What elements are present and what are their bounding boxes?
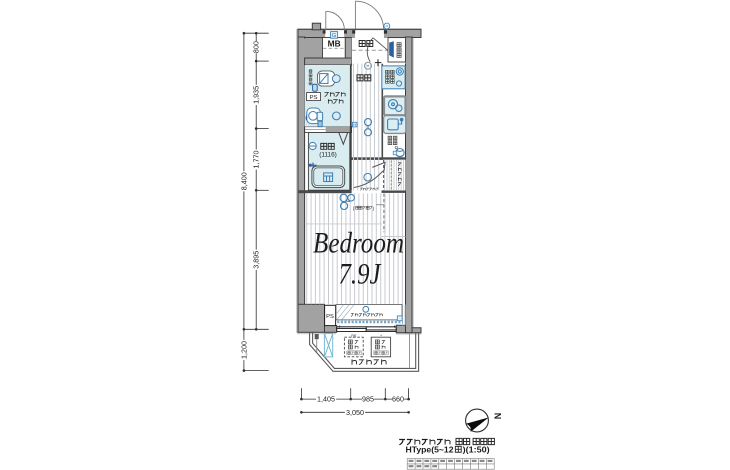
svg-text:G: G: [332, 33, 336, 39]
svg-text:(1116): (1116): [319, 151, 337, 158]
svg-text:Bedroom: Bedroom: [313, 228, 404, 260]
svg-text:3,895: 3,895: [252, 251, 261, 269]
svg-text:3,050: 3,050: [346, 408, 364, 417]
svg-text:HType(5~12: HType(5~12: [406, 445, 454, 455]
svg-text:)(1:50): )(1:50): [463, 445, 490, 455]
svg-text:^: ^: [380, 333, 382, 338]
svg-text:H: H: [353, 123, 356, 127]
svg-text:PS: PS: [310, 95, 318, 101]
svg-text:N: N: [493, 413, 503, 420]
svg-text:660: 660: [392, 395, 404, 404]
svg-text:985: 985: [362, 395, 374, 404]
svg-text:1,770: 1,770: [252, 150, 261, 168]
svg-text:800: 800: [252, 41, 261, 53]
svg-text:1,935: 1,935: [252, 86, 261, 104]
svg-text:7.9J: 7.9J: [339, 259, 383, 291]
svg-text:MB: MB: [328, 39, 341, 49]
svg-text:(w): (w): [351, 334, 356, 338]
svg-text:1,200: 1,200: [239, 341, 248, 359]
svg-text:PS: PS: [326, 314, 334, 320]
svg-text:8,400: 8,400: [239, 172, 248, 190]
svg-text:1,405: 1,405: [317, 395, 335, 404]
